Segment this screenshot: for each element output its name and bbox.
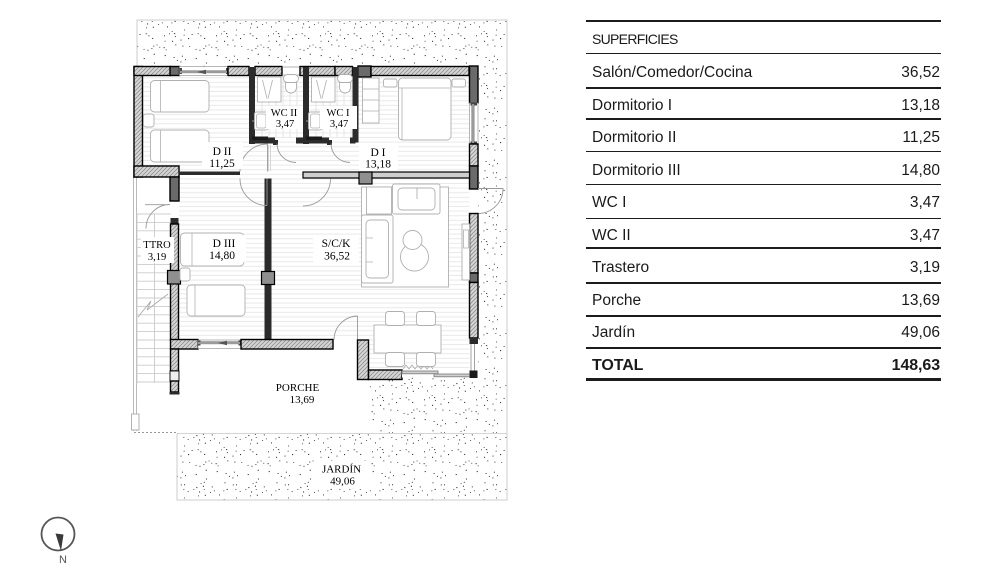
svg-text:PORCHE: PORCHE: [276, 382, 320, 394]
svg-text:3,47: 3,47: [330, 119, 348, 130]
svg-text:14,80: 14,80: [209, 250, 235, 262]
svg-text:13,18: 13,18: [365, 159, 391, 171]
svg-text:S/C/K: S/C/K: [322, 238, 351, 250]
svg-text:D III: D III: [213, 238, 236, 250]
svg-text:3,19: 3,19: [148, 252, 166, 263]
svg-text:13,69: 13,69: [290, 394, 315, 406]
svg-text:D I: D I: [370, 147, 385, 159]
svg-text:TTRO: TTRO: [143, 240, 171, 251]
svg-text:11,25: 11,25: [209, 158, 235, 170]
svg-text:WC I: WC I: [326, 108, 350, 119]
svg-text:WC II: WC II: [271, 108, 298, 119]
svg-text:D II: D II: [213, 146, 232, 158]
svg-text:36,52: 36,52: [324, 251, 350, 263]
svg-text:N: N: [59, 554, 67, 566]
svg-text:JARDÍN: JARDÍN: [322, 464, 361, 476]
svg-text:49,06: 49,06: [330, 476, 355, 488]
svg-text:3,47: 3,47: [276, 119, 294, 130]
